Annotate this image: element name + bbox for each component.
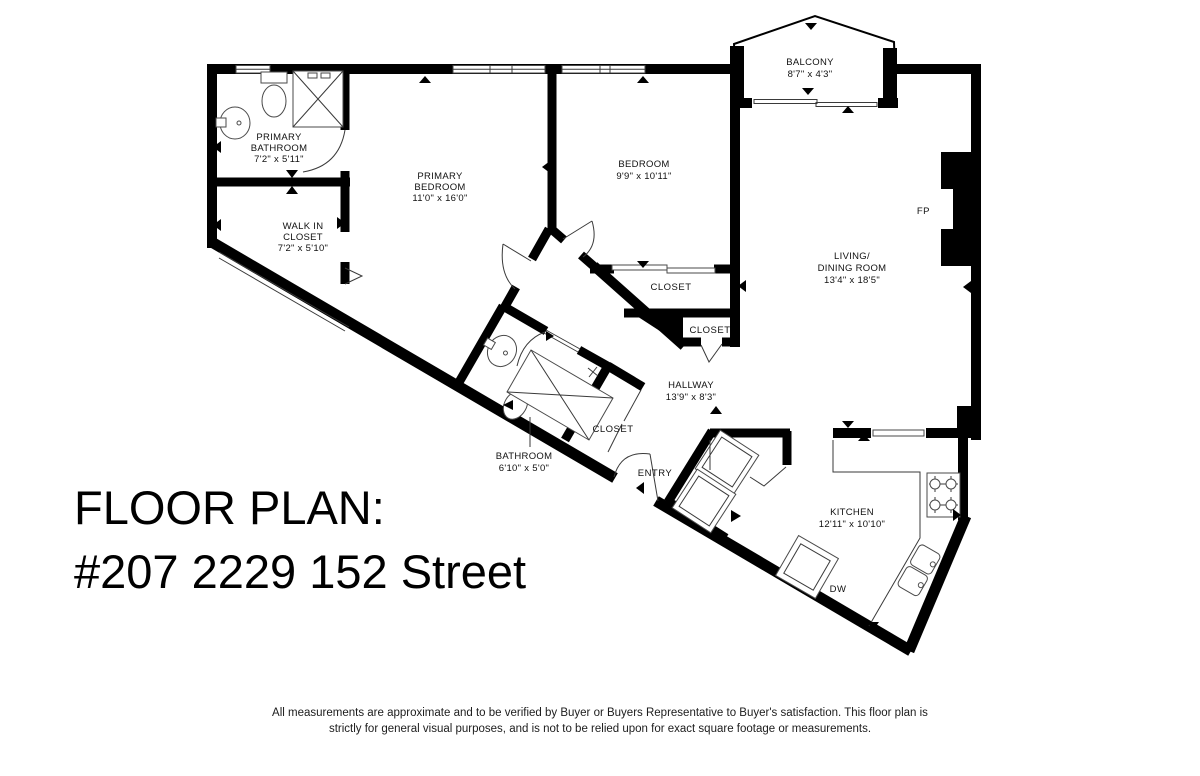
kitchen-window-overlay bbox=[871, 427, 926, 439]
svg-text:13'9" x 8'3": 13'9" x 8'3" bbox=[666, 392, 716, 403]
svg-text:13'4" x 18'5": 13'4" x 18'5" bbox=[824, 275, 880, 286]
svg-text:LIVING/: LIVING/ bbox=[834, 251, 870, 262]
primary-suite-door-wall bbox=[503, 229, 549, 310]
label-closet-bath: CLOSET bbox=[592, 424, 633, 435]
bedroom-door bbox=[563, 221, 594, 257]
svg-text:CLOSET: CLOSET bbox=[283, 232, 323, 243]
bath-closet-north-wall bbox=[608, 366, 643, 387]
svg-text:WALK IN: WALK IN bbox=[283, 221, 324, 232]
svg-text:6'10" x 5'0": 6'10" x 5'0" bbox=[499, 463, 549, 474]
svg-text:9'9" x 10'11": 9'9" x 10'11" bbox=[616, 171, 671, 182]
label-fireplace: FP bbox=[917, 206, 930, 217]
fireplace-firebox bbox=[941, 189, 953, 229]
label-bedroom: BEDROOM 9'9" x 10'11" bbox=[616, 159, 671, 182]
svg-text:PRIMARY: PRIMARY bbox=[417, 171, 463, 182]
svg-text:BEDROOM: BEDROOM bbox=[618, 159, 669, 170]
label-dishwasher: DW bbox=[830, 584, 847, 595]
bath-closet-bifold-door bbox=[608, 390, 641, 452]
svg-text:11'0" x 16'0": 11'0" x 16'0" bbox=[412, 193, 467, 204]
hall-closet-door bbox=[701, 344, 722, 362]
svg-text:7'2" x 5'10": 7'2" x 5'10" bbox=[278, 243, 328, 254]
svg-text:BEDROOM: BEDROOM bbox=[414, 182, 465, 193]
bedroom-closet-bifold-door bbox=[612, 265, 667, 270]
shower-icon bbox=[293, 71, 343, 127]
window-bedroom bbox=[562, 66, 645, 74]
label-closet-hall: CLOSET bbox=[689, 325, 730, 336]
stove-icon bbox=[927, 473, 960, 517]
svg-text:KITCHEN: KITCHEN bbox=[830, 507, 874, 518]
hallway-northeast-wall bbox=[594, 266, 684, 346]
svg-text:HALLWAY: HALLWAY bbox=[668, 380, 714, 391]
svg-text:BATHROOM: BATHROOM bbox=[496, 451, 553, 462]
toilet-icon bbox=[261, 72, 287, 117]
floor-plan-page: PRIMARY BATHROOM 7'2" x 5'11" WALK IN CL… bbox=[0, 0, 1200, 776]
disclaimer-text: All measurements are approximate and to … bbox=[0, 706, 1200, 737]
label-walk-in-closet: WALK IN CLOSET 7'2" x 5'10" bbox=[278, 221, 328, 254]
floor-plan-drawing: PRIMARY BATHROOM 7'2" x 5'11" WALK IN CL… bbox=[0, 0, 1200, 776]
title-line-1: FLOOR PLAN: bbox=[74, 476, 526, 540]
laundry-closet-door bbox=[750, 467, 786, 486]
primary-suite-door bbox=[502, 244, 531, 289]
label-balcony: BALCONY 8'7" x 4'3" bbox=[786, 57, 834, 80]
svg-text:8'7" x 4'3": 8'7" x 4'3" bbox=[788, 69, 833, 80]
primary-bathroom-door bbox=[303, 130, 345, 172]
bedroom-closet-bifold-door bbox=[667, 268, 715, 273]
label-hallway: HALLWAY 13'9" x 8'3" bbox=[666, 380, 716, 403]
svg-text:12'11" x 10'10": 12'11" x 10'10" bbox=[819, 519, 885, 530]
label-primary-bathroom: PRIMARY BATHROOM 7'2" x 5'11" bbox=[251, 132, 308, 165]
sink-icon bbox=[216, 107, 250, 139]
page-title: FLOOR PLAN: #207 2229 152 Street bbox=[74, 476, 526, 604]
label-living-dining: LIVING/ DINING ROOM 13'4" x 18'5" bbox=[818, 251, 887, 286]
svg-text:BALCONY: BALCONY bbox=[786, 57, 834, 68]
svg-text:DINING ROOM: DINING ROOM bbox=[818, 263, 887, 274]
svg-text:7'2" x 5'11": 7'2" x 5'11" bbox=[254, 154, 304, 165]
label-primary-bedroom: PRIMARY BEDROOM 11'0" x 16'0" bbox=[412, 171, 467, 204]
window-primary-bedroom bbox=[453, 66, 545, 74]
disclaimer-line-2: strictly for general visual purposes, an… bbox=[0, 722, 1200, 738]
label-entry: ENTRY bbox=[638, 468, 673, 479]
svg-text:PRIMARY: PRIMARY bbox=[256, 132, 302, 143]
label-bathroom: BATHROOM 6'10" x 5'0" bbox=[496, 451, 553, 474]
label-closet-bedroom: CLOSET bbox=[650, 282, 691, 293]
label-kitchen: KITCHEN 12'11" x 10'10" bbox=[819, 507, 885, 530]
svg-text:BATHROOM: BATHROOM bbox=[251, 143, 308, 154]
disclaimer-line-1: All measurements are approximate and to … bbox=[0, 706, 1200, 722]
title-line-2: #207 2229 152 Street bbox=[74, 540, 526, 604]
